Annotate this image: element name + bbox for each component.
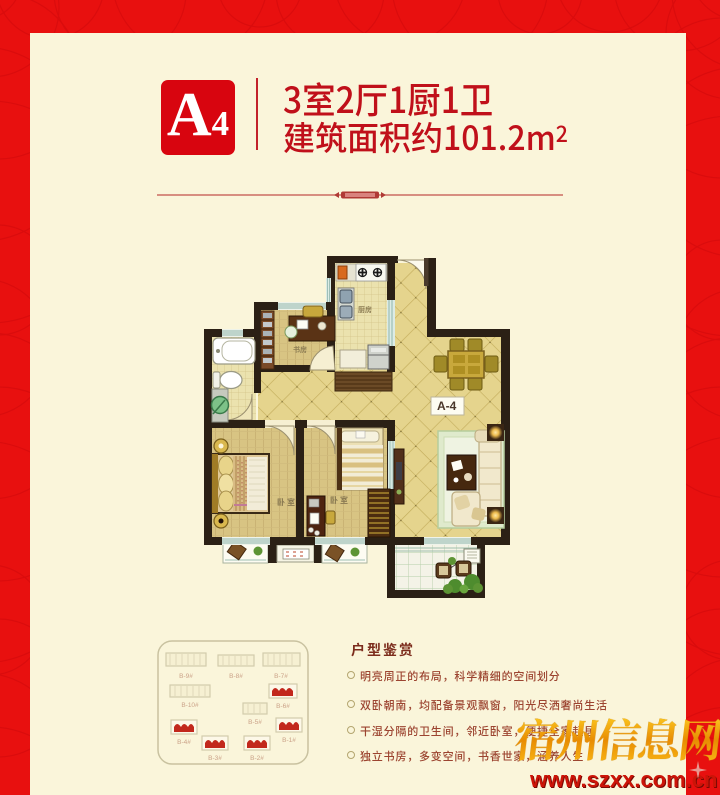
- svg-text:B-8#: B-8#: [229, 673, 243, 680]
- svg-text:B-6#: B-6#: [276, 703, 290, 710]
- svg-text:B-7#: B-7#: [274, 673, 288, 680]
- svg-text:B-5#: B-5#: [248, 719, 262, 726]
- svg-text:B-1#: B-1#: [282, 737, 296, 744]
- svg-text:B-2#: B-2#: [250, 755, 264, 762]
- svg-text:B-3#: B-3#: [208, 755, 222, 762]
- svg-text:B-9#: B-9#: [179, 673, 193, 680]
- svg-text:B-4#: B-4#: [177, 739, 191, 746]
- svg-text:B-10#: B-10#: [181, 702, 199, 709]
